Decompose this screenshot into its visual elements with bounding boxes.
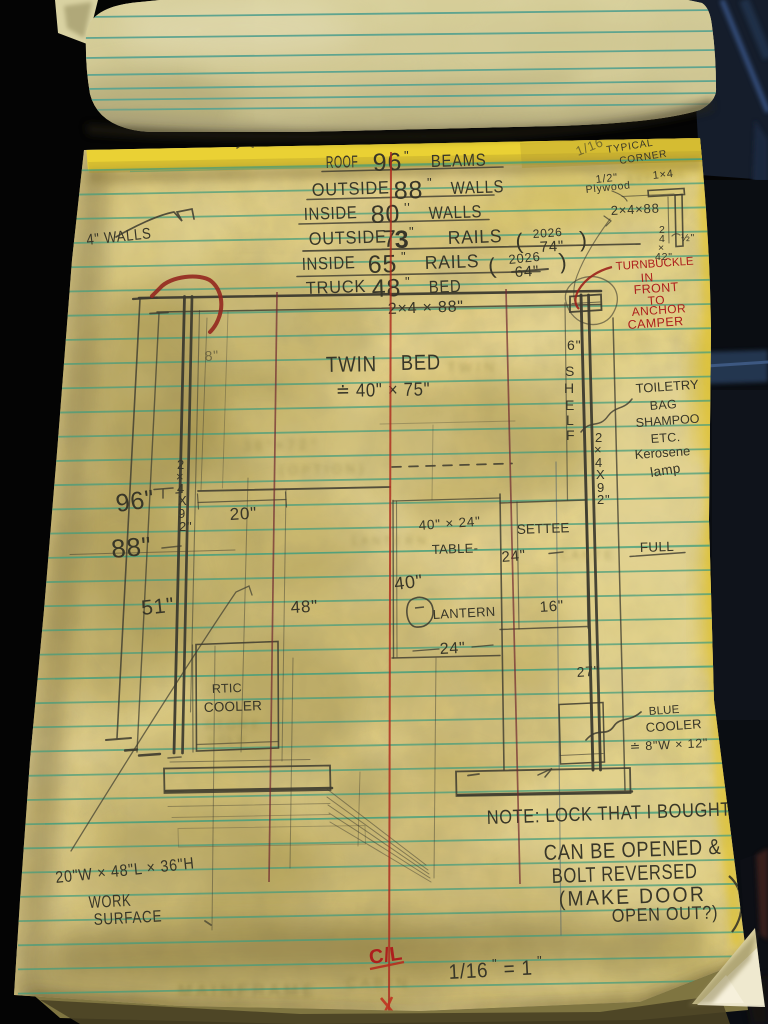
svg-text:M A I N F R A M E: M A I N F R A M E xyxy=(178,981,314,1000)
svg-text:E: E xyxy=(565,397,575,413)
svg-text:OUTSIDE: OUTSIDE xyxy=(311,177,389,201)
svg-text:TRUCK: TRUCK xyxy=(305,276,366,298)
svg-text:C A B I N: C A B I N xyxy=(346,975,407,992)
svg-text:": " xyxy=(401,249,406,264)
svg-text:F: F xyxy=(566,427,575,443)
svg-text:≐ 40" × 75": ≐ 40" × 75" xyxy=(336,378,431,401)
svg-text:H: H xyxy=(564,380,575,396)
svg-text:RTIC: RTIC xyxy=(212,681,243,696)
svg-text:OUTSIDE: OUTSIDE xyxy=(308,226,386,250)
svg-text:TWIN: TWIN xyxy=(326,353,378,378)
svg-text:": " xyxy=(404,148,409,163)
svg-text:BLUE: BLUE xyxy=(648,704,680,718)
svg-text:SURFACE: SURFACE xyxy=(93,907,162,929)
svg-text:C A N T E: C A N T E xyxy=(560,548,612,562)
svg-text:WALLS: WALLS xyxy=(450,177,504,198)
svg-text:48: 48 xyxy=(371,274,401,303)
svg-text:24": 24" xyxy=(501,547,527,566)
svg-text:SETTEE: SETTEE xyxy=(517,520,570,537)
svg-text:2×4×88: 2×4×88 xyxy=(610,200,660,218)
svg-text:2": 2" xyxy=(179,519,192,534)
svg-text:ROOF: ROOF xyxy=(326,152,359,172)
svg-text:2×4 × 88": 2×4 × 88" xyxy=(388,298,465,318)
svg-text:INSIDE: INSIDE xyxy=(301,253,355,274)
svg-text:27": 27" xyxy=(576,662,600,680)
svg-text:64": 64" xyxy=(514,263,539,281)
svg-text:": " xyxy=(409,224,414,239)
svg-text:40": 40" xyxy=(393,571,424,594)
svg-text:24": 24" xyxy=(439,640,466,658)
svg-text:TABLE-: TABLE- xyxy=(432,540,479,557)
svg-text:": " xyxy=(492,956,497,971)
svg-text:BEAMS: BEAMS xyxy=(431,150,487,171)
svg-text:L A N T E R N: L A N T E R N xyxy=(352,534,426,548)
svg-text:88": 88" xyxy=(110,531,153,564)
svg-text:51": 51" xyxy=(140,594,175,620)
svg-text:3 8 " × 7 2 ": 3 8 " × 7 2 " xyxy=(243,436,316,454)
svg-text:= 1: = 1 xyxy=(503,957,533,982)
svg-text:): ) xyxy=(579,226,589,252)
svg-text:COOLER: COOLER xyxy=(204,698,263,715)
svg-text:5 0 L B: 5 0 L B xyxy=(208,734,246,748)
svg-text:WALLS: WALLS xyxy=(428,202,482,223)
svg-text:8": 8" xyxy=(204,347,219,364)
svg-text:½": ½" xyxy=(681,232,695,244)
svg-text:RAILS: RAILS xyxy=(424,251,479,273)
svg-text:2": 2" xyxy=(597,492,610,507)
svg-text:1/16: 1/16 xyxy=(448,959,489,984)
svg-text:INSIDE: INSIDE xyxy=(303,203,357,224)
svg-text:": " xyxy=(537,953,542,968)
svg-text:BAG: BAG xyxy=(649,397,677,413)
svg-text:L: L xyxy=(566,412,575,428)
svg-text:48": 48" xyxy=(290,597,318,617)
svg-text:6": 6" xyxy=(567,337,581,353)
svg-text:": " xyxy=(427,175,432,190)
svg-text:( O P T I O N ): ( O P T I O N ) xyxy=(280,461,363,478)
svg-text:OPEN OUT?): OPEN OUT?) xyxy=(611,901,718,926)
svg-text:RAILS: RAILS xyxy=(447,226,502,248)
svg-text:S T O R E: S T O R E xyxy=(205,718,259,732)
svg-text:": " xyxy=(405,274,410,289)
svg-text:BED: BED xyxy=(428,277,461,298)
svg-text:20": 20" xyxy=(229,504,257,524)
svg-text:T W I N: T W I N xyxy=(447,359,494,375)
svg-text:1×4: 1×4 xyxy=(652,168,674,182)
svg-text:FULL: FULL xyxy=(640,539,675,555)
svg-text:S: S xyxy=(565,363,575,379)
svg-text:BED: BED xyxy=(401,351,442,375)
svg-text:96: 96 xyxy=(372,148,402,177)
svg-text:'': '' xyxy=(404,200,411,215)
svg-text:16": 16" xyxy=(539,597,565,616)
svg-text:96": 96" xyxy=(114,485,157,518)
